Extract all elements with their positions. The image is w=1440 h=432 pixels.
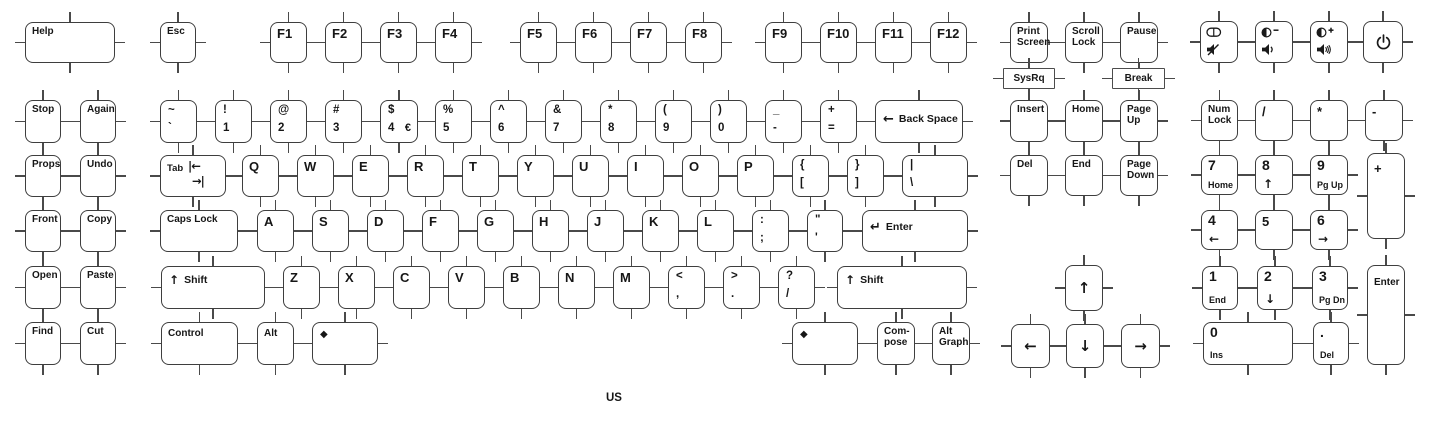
tick-mark xyxy=(824,312,826,322)
tick-mark xyxy=(548,287,558,289)
tick-mark xyxy=(467,230,477,232)
tick-mark xyxy=(1329,256,1331,266)
key-home: Home xyxy=(1065,100,1103,142)
tick-mark xyxy=(508,90,510,100)
tick-mark xyxy=(150,230,160,232)
tick-mark xyxy=(398,12,400,22)
tick-mark xyxy=(275,252,277,262)
key-label: H xyxy=(539,215,548,228)
tick-mark xyxy=(42,200,44,210)
tick-mark xyxy=(576,309,578,319)
tick-mark xyxy=(1353,41,1363,43)
tick-mark xyxy=(1405,195,1415,197)
power-icon xyxy=(1375,34,1392,51)
tick-mark xyxy=(617,175,627,177)
key-f2: F2 xyxy=(325,22,362,63)
key-shifted-symbol: * xyxy=(608,104,612,117)
tick-mark xyxy=(385,252,387,262)
key-label: F10 xyxy=(827,27,849,40)
tick-mark xyxy=(675,42,685,44)
tick-mark xyxy=(893,63,895,73)
key-e: E xyxy=(352,155,389,197)
tick-mark xyxy=(1357,314,1367,316)
tick-mark xyxy=(1028,90,1030,100)
key-insert: Insert xyxy=(1010,100,1048,142)
tick-mark xyxy=(301,309,303,319)
key-shifted-symbol: " xyxy=(815,214,820,227)
key-label: Front xyxy=(32,215,58,226)
key-f9: F9 xyxy=(765,22,802,63)
tick-mark xyxy=(1348,287,1358,289)
tick-mark xyxy=(1028,145,1030,155)
tick-mark xyxy=(1382,11,1384,21)
key-label: V xyxy=(455,271,464,284)
tick-mark xyxy=(425,145,427,155)
tick-mark xyxy=(901,256,903,266)
tick-mark xyxy=(97,200,99,210)
tick-mark xyxy=(550,200,552,210)
tick-mark xyxy=(42,312,44,322)
tick-mark xyxy=(1084,314,1086,324)
tick-mark xyxy=(507,175,517,177)
key-sublabel: Pg Up xyxy=(1317,181,1343,190)
tick-mark xyxy=(715,252,717,262)
tick-mark xyxy=(1030,314,1032,324)
tick-mark xyxy=(70,230,80,232)
tick-mark xyxy=(741,256,743,266)
key-label: Y xyxy=(524,160,533,173)
tick-mark xyxy=(315,42,325,44)
tick-mark xyxy=(1303,343,1313,345)
key-label: M xyxy=(620,271,631,284)
key-label: Help xyxy=(32,27,54,38)
key-caps-lock: Caps Lock xyxy=(160,210,238,252)
tick-mark xyxy=(603,287,613,289)
tick-mark xyxy=(1273,63,1275,73)
key-label: Props xyxy=(32,160,60,171)
tick-mark xyxy=(1348,174,1358,176)
key-kp-7: 7Home xyxy=(1201,155,1238,195)
tick-mark xyxy=(425,121,435,123)
tick-mark xyxy=(1110,175,1120,177)
tick-mark xyxy=(770,200,772,210)
key-label: Shift xyxy=(184,275,207,286)
tick-mark xyxy=(605,252,607,262)
key-symbol: \ xyxy=(910,177,913,190)
key-main-label: 6 xyxy=(1317,212,1325,229)
key-label: Again xyxy=(87,105,115,116)
tick-mark xyxy=(1328,145,1330,155)
tick-mark xyxy=(260,145,262,155)
shift-arrow-icon: ↑ xyxy=(169,274,179,286)
key-f4: F4 xyxy=(435,22,472,63)
tick-mark xyxy=(631,309,633,319)
key-s: S xyxy=(312,210,349,252)
key-shift-left: ↑Shift xyxy=(161,266,265,309)
tick-mark xyxy=(934,145,936,155)
tick-mark xyxy=(948,63,950,73)
tick-mark xyxy=(700,197,702,207)
tick-mark xyxy=(768,287,778,289)
tick-mark xyxy=(1083,145,1085,155)
tick-mark xyxy=(593,63,595,73)
key-symbol: 0 xyxy=(718,122,724,135)
key-arrow-icon: ← xyxy=(1209,233,1219,245)
tick-mark xyxy=(330,252,332,262)
key-symbol: , xyxy=(676,288,679,301)
key-again: Again xyxy=(80,100,116,143)
key-9: (9 xyxy=(655,100,692,143)
key-shifted-symbol: ~ xyxy=(168,104,175,117)
key-main-label: 8 xyxy=(1262,157,1270,174)
tick-mark xyxy=(1405,314,1415,316)
tick-mark xyxy=(192,197,194,207)
tick-mark xyxy=(1300,41,1310,43)
key-altgr-symbol: € xyxy=(405,122,411,135)
key-label: Paste xyxy=(87,271,114,282)
tick-mark xyxy=(315,145,317,155)
key-label: Num xyxy=(1208,105,1230,116)
tick-mark xyxy=(1348,229,1358,231)
tick-mark xyxy=(901,309,903,319)
key-u: U xyxy=(572,155,609,197)
tick-mark xyxy=(1192,287,1202,289)
tick-mark xyxy=(328,287,338,289)
key-label: Graph xyxy=(939,338,968,349)
key-label: Screen xyxy=(1017,38,1050,49)
tick-mark xyxy=(535,121,545,123)
key-scroll-lock: ScrollLock xyxy=(1065,22,1103,63)
tick-mark xyxy=(810,121,820,123)
key-label: Stop xyxy=(32,105,54,116)
tick-mark xyxy=(673,143,675,153)
tick-mark xyxy=(398,143,400,153)
key-arrow-icon: ↑ xyxy=(1263,178,1273,190)
key-r: R xyxy=(407,155,444,197)
tick-mark xyxy=(948,12,950,22)
tick-mark xyxy=(116,121,126,123)
tick-mark xyxy=(302,343,312,345)
tick-mark xyxy=(1191,120,1201,122)
tick-mark xyxy=(69,63,71,73)
key-label: Back Space xyxy=(899,114,958,125)
key-j: J xyxy=(587,210,624,252)
tick-mark xyxy=(466,256,468,266)
tick-mark xyxy=(1247,365,1249,375)
tick-mark xyxy=(715,200,717,210)
key-kp-6: 6→ xyxy=(1310,210,1348,250)
key-pause: Pause xyxy=(1120,22,1158,63)
tick-mark xyxy=(1110,120,1120,122)
key-backspace: ←Back Space xyxy=(875,100,963,143)
key-h: H xyxy=(532,210,569,252)
tick-mark xyxy=(1219,145,1221,155)
tick-mark xyxy=(892,175,902,177)
tick-mark xyxy=(824,252,826,262)
tick-mark xyxy=(212,256,214,266)
tick-mark xyxy=(783,143,785,153)
key-kp-2: 2↓ xyxy=(1257,266,1293,310)
key-label: Find xyxy=(32,327,53,338)
tick-mark xyxy=(1000,42,1010,44)
key-t: T xyxy=(462,155,499,197)
tick-mark xyxy=(378,343,388,345)
tick-mark xyxy=(383,287,393,289)
key-symbol: ' xyxy=(815,232,818,245)
key-mute xyxy=(1200,21,1238,63)
tick-mark xyxy=(728,143,730,153)
key-label: P xyxy=(744,160,753,173)
key-label: Down xyxy=(1127,171,1154,182)
tick-mark xyxy=(837,175,847,177)
key-label: pose xyxy=(884,338,907,349)
tick-mark xyxy=(703,63,705,73)
tick-mark xyxy=(493,287,503,289)
key-label: 5 xyxy=(1262,215,1269,228)
tick-mark xyxy=(177,12,179,22)
tick-mark xyxy=(645,145,647,155)
tick-mark xyxy=(370,145,372,155)
key-label: F12 xyxy=(937,27,959,40)
tick-mark xyxy=(824,200,826,210)
key-label: Page xyxy=(1127,160,1151,171)
tick-mark xyxy=(97,90,99,100)
key-label: N xyxy=(565,271,574,284)
tick-mark xyxy=(357,230,367,232)
key-main-label: 3 xyxy=(1319,268,1327,285)
tick-mark xyxy=(741,309,743,319)
key-alt: Alt xyxy=(257,322,294,365)
key-2: @2 xyxy=(270,100,307,143)
tick-mark xyxy=(275,200,277,210)
tick-mark xyxy=(1158,175,1168,177)
tick-mark xyxy=(1245,120,1255,122)
key-label: SysRq xyxy=(1013,73,1044,84)
key-f10: F10 xyxy=(820,22,857,63)
key-g: G xyxy=(477,210,514,252)
tick-mark xyxy=(686,256,688,266)
key-meta-right: ◆ xyxy=(792,322,858,365)
tick-mark xyxy=(97,312,99,322)
key-label: F5 xyxy=(527,27,542,40)
layout-name-label: US xyxy=(594,392,634,404)
key-shifted-symbol: & xyxy=(553,104,561,117)
key-grave: ~` xyxy=(160,100,197,143)
key-bracket-left: {[ xyxy=(792,155,829,197)
key-label: Scroll xyxy=(1072,27,1100,38)
tick-mark xyxy=(755,197,757,207)
contrast-plus-icon xyxy=(1316,27,1335,38)
key-label: Del xyxy=(1017,160,1033,171)
arrow-up-icon: ↑ xyxy=(1078,279,1091,297)
key-f7: F7 xyxy=(630,22,667,63)
tick-mark xyxy=(1102,78,1112,80)
key-sublabel: Pg Dn xyxy=(1319,296,1345,305)
tick-mark xyxy=(1330,312,1332,322)
tick-mark xyxy=(260,121,270,123)
key-label: Control xyxy=(168,329,204,340)
tick-mark xyxy=(302,230,312,232)
tick-mark xyxy=(1055,175,1065,177)
key-f: F xyxy=(422,210,459,252)
key-main-label: 4 xyxy=(1208,212,1216,229)
tick-mark xyxy=(1293,343,1303,345)
key-label: J xyxy=(594,215,601,228)
tick-mark xyxy=(70,287,80,289)
tick-mark xyxy=(1403,120,1413,122)
key-volume-up xyxy=(1310,21,1348,63)
tick-mark xyxy=(852,230,862,232)
tick-mark xyxy=(970,343,980,345)
key-label: Up xyxy=(1127,116,1140,127)
key-f11: F11 xyxy=(875,22,912,63)
key-label: Cut xyxy=(87,327,104,338)
tick-mark xyxy=(440,200,442,210)
key-label: B xyxy=(510,271,519,284)
tick-mark xyxy=(1028,58,1030,68)
tick-mark xyxy=(115,42,125,44)
tick-mark xyxy=(1300,174,1310,176)
key-label: Copy xyxy=(87,215,112,226)
key-backslash: |\ xyxy=(902,155,968,197)
key-kp-add: + xyxy=(1367,153,1405,239)
tick-mark xyxy=(618,143,620,153)
key-page-down: PageDown xyxy=(1120,155,1158,196)
key-label: G xyxy=(484,215,494,228)
tick-mark xyxy=(577,230,587,232)
tick-mark xyxy=(42,145,44,155)
tick-mark xyxy=(150,42,160,44)
tick-mark xyxy=(97,145,99,155)
tick-mark xyxy=(42,90,44,100)
tick-mark xyxy=(198,252,200,262)
key-arrow-right: → xyxy=(1121,324,1160,368)
tick-mark xyxy=(1028,12,1030,22)
key-control: Control xyxy=(161,322,238,365)
key-label: Shift xyxy=(860,275,883,286)
key-kp-9: 9Pg Up xyxy=(1310,155,1348,195)
key-arrow-up: ↑ xyxy=(1065,265,1103,311)
key-label: F8 xyxy=(692,27,707,40)
key-w: W xyxy=(297,155,334,197)
tick-mark xyxy=(452,175,462,177)
key-volume-down xyxy=(1255,21,1293,63)
tick-mark xyxy=(895,365,897,375)
speaker-low-icon xyxy=(1261,43,1277,56)
key-shifted-symbol: | xyxy=(910,159,913,172)
tick-mark xyxy=(70,343,80,345)
key-comma: <, xyxy=(668,266,705,309)
tab-left-icon: |← xyxy=(188,161,200,172)
key-symbol: 6 xyxy=(498,122,504,135)
key-shifted-symbol: ( xyxy=(663,104,667,117)
key-power xyxy=(1363,21,1403,63)
tick-mark xyxy=(1328,200,1330,210)
tick-mark xyxy=(212,309,214,319)
tick-mark xyxy=(605,200,607,210)
tick-mark xyxy=(713,287,723,289)
tick-mark xyxy=(198,200,200,210)
tick-mark xyxy=(673,90,675,100)
tick-mark xyxy=(116,343,126,345)
tick-mark xyxy=(370,42,380,44)
tick-mark xyxy=(398,63,400,73)
key-label: D xyxy=(374,215,383,228)
tick-mark xyxy=(838,12,840,22)
key-esc: Esc xyxy=(160,22,196,63)
tick-mark xyxy=(1158,42,1168,44)
tick-mark xyxy=(865,197,867,207)
tick-mark xyxy=(343,143,345,153)
tick-mark xyxy=(645,197,647,207)
tick-mark xyxy=(116,287,126,289)
tick-mark xyxy=(810,42,820,44)
tick-mark xyxy=(535,145,537,155)
tick-mark xyxy=(385,200,387,210)
key-shifted-symbol: @ xyxy=(278,104,289,117)
key-f6: F6 xyxy=(575,22,612,63)
key-label: Print xyxy=(1017,27,1040,38)
tick-mark xyxy=(232,175,242,177)
key-f1: F1 xyxy=(270,22,307,63)
tick-mark xyxy=(116,230,126,232)
tick-mark xyxy=(918,90,920,100)
key-label: Undo xyxy=(87,160,113,171)
tick-mark xyxy=(1403,41,1413,43)
key-main-label: 9 xyxy=(1317,157,1325,174)
tick-mark xyxy=(1349,343,1359,345)
tick-mark xyxy=(1138,145,1140,155)
tick-mark xyxy=(69,12,71,22)
tick-mark xyxy=(920,42,930,44)
tick-mark xyxy=(1138,12,1140,22)
key-label: Com- xyxy=(884,327,910,338)
tick-mark xyxy=(247,230,257,232)
tick-mark xyxy=(968,175,978,177)
tick-mark xyxy=(535,197,537,207)
speaker-loud-icon xyxy=(1316,43,1333,56)
tick-mark xyxy=(1191,174,1201,176)
key-c: C xyxy=(393,266,430,309)
meta-diamond-icon: ◆ xyxy=(320,330,328,340)
key-1: !1 xyxy=(215,100,252,143)
key-shifted-symbol: + xyxy=(828,104,835,117)
tick-mark xyxy=(1218,63,1220,73)
tick-mark xyxy=(783,63,785,73)
tick-mark xyxy=(1273,200,1275,210)
key-0: )0 xyxy=(710,100,747,143)
key-label: End xyxy=(1072,160,1091,171)
key-enter: ↵Enter xyxy=(862,210,968,252)
tick-mark xyxy=(838,63,840,73)
key-z: Z xyxy=(283,266,320,309)
tick-mark xyxy=(1273,11,1275,21)
key-apostrophe: "' xyxy=(807,210,843,252)
tick-mark xyxy=(1055,78,1065,80)
tick-mark xyxy=(97,365,99,375)
tick-mark xyxy=(538,12,540,22)
key-o: O xyxy=(682,155,719,197)
key-shifted-symbol: < xyxy=(676,270,683,283)
key-label: F1 xyxy=(277,27,292,40)
tick-mark xyxy=(1030,368,1032,378)
tick-mark xyxy=(576,256,578,266)
contrast-minus-icon xyxy=(1261,27,1280,38)
tick-mark xyxy=(453,143,455,153)
tick-mark xyxy=(590,145,592,155)
tick-mark xyxy=(1160,345,1170,347)
tick-mark xyxy=(1355,120,1365,122)
